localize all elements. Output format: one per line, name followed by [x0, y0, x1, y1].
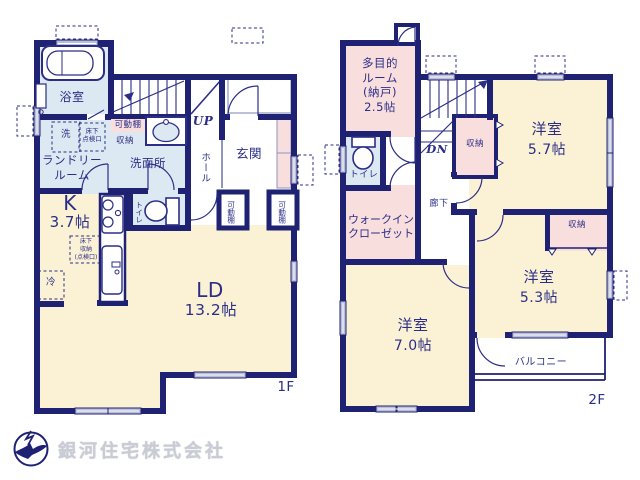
room-label-bedroom70: 洋室: [384, 316, 442, 335]
room-label-washroom: 洗面所: [118, 156, 178, 171]
room-label-laundry: ランドリー ルーム: [30, 153, 114, 182]
floorplan-page: 浴室 ランドリー ルーム 洗 床下 点検口 可動棚 収納 洗面所 UP ホール …: [0, 0, 640, 480]
washbasin-icon: [146, 117, 186, 145]
room-label-bedroom57: 洋室: [518, 120, 576, 139]
room-label-multi: 多目的 ルーム (納戸) 2.5帖: [344, 56, 416, 115]
compass-icon: [15, 431, 48, 466]
sink-icon: [102, 246, 122, 294]
room-label-bedroom53: 洋室: [510, 268, 568, 287]
room-label-toilet-2f: トイレ: [346, 170, 382, 182]
label-storage-understairs: 収納: [110, 136, 140, 147]
label-fridge: 冷: [38, 277, 64, 289]
label-movable-shelf: 可動棚: [111, 119, 145, 132]
company-name: 銀河住宅株式会社: [58, 437, 226, 463]
room-label-ld: LD: [185, 278, 235, 304]
bathtub-icon: [42, 46, 104, 80]
label-underfloor-hatch: 床下 点検口: [79, 127, 105, 144]
room-size-bedroom57: 5.7帖: [516, 142, 578, 160]
room-label-bath: 浴室: [46, 90, 98, 105]
stove-icon: [102, 196, 123, 233]
label-storage-53: 収納: [560, 220, 594, 231]
room-label-hall: ホール: [198, 146, 210, 190]
floor-label-1f: 1F: [272, 379, 300, 396]
room-label-wic: ウォークイン クローゼット: [342, 213, 420, 241]
room-label-balcony: バルコニー: [506, 357, 576, 370]
label-stairs-up: UP: [190, 114, 216, 129]
floor-label-2f: 2F: [582, 392, 612, 409]
room-size-bedroom53: 5.3帖: [508, 290, 570, 308]
label-shelf-right: 可動棚: [277, 194, 287, 230]
room-size-bedroom70: 7.0帖: [382, 338, 444, 356]
toilet-icon-2f: [352, 137, 375, 169]
label-underfloor-storage: 床下 収納 (点検口): [69, 238, 103, 262]
room-size-kitchen: 3.7帖: [40, 213, 100, 232]
room-size-ld: 13.2帖: [180, 301, 242, 321]
label-shelf-left: 可動棚: [226, 194, 236, 230]
room-label-hallway: 廊下: [424, 199, 454, 211]
label-storage-2f-stairs: 収納: [458, 139, 492, 150]
room-label-toilet-1f: トイレ: [134, 196, 144, 228]
bedroom70-floor: [340, 259, 475, 412]
label-washer: 洗: [52, 129, 80, 141]
label-stairs-down: DN: [424, 142, 450, 157]
room-label-entrance: 玄関: [226, 146, 272, 162]
